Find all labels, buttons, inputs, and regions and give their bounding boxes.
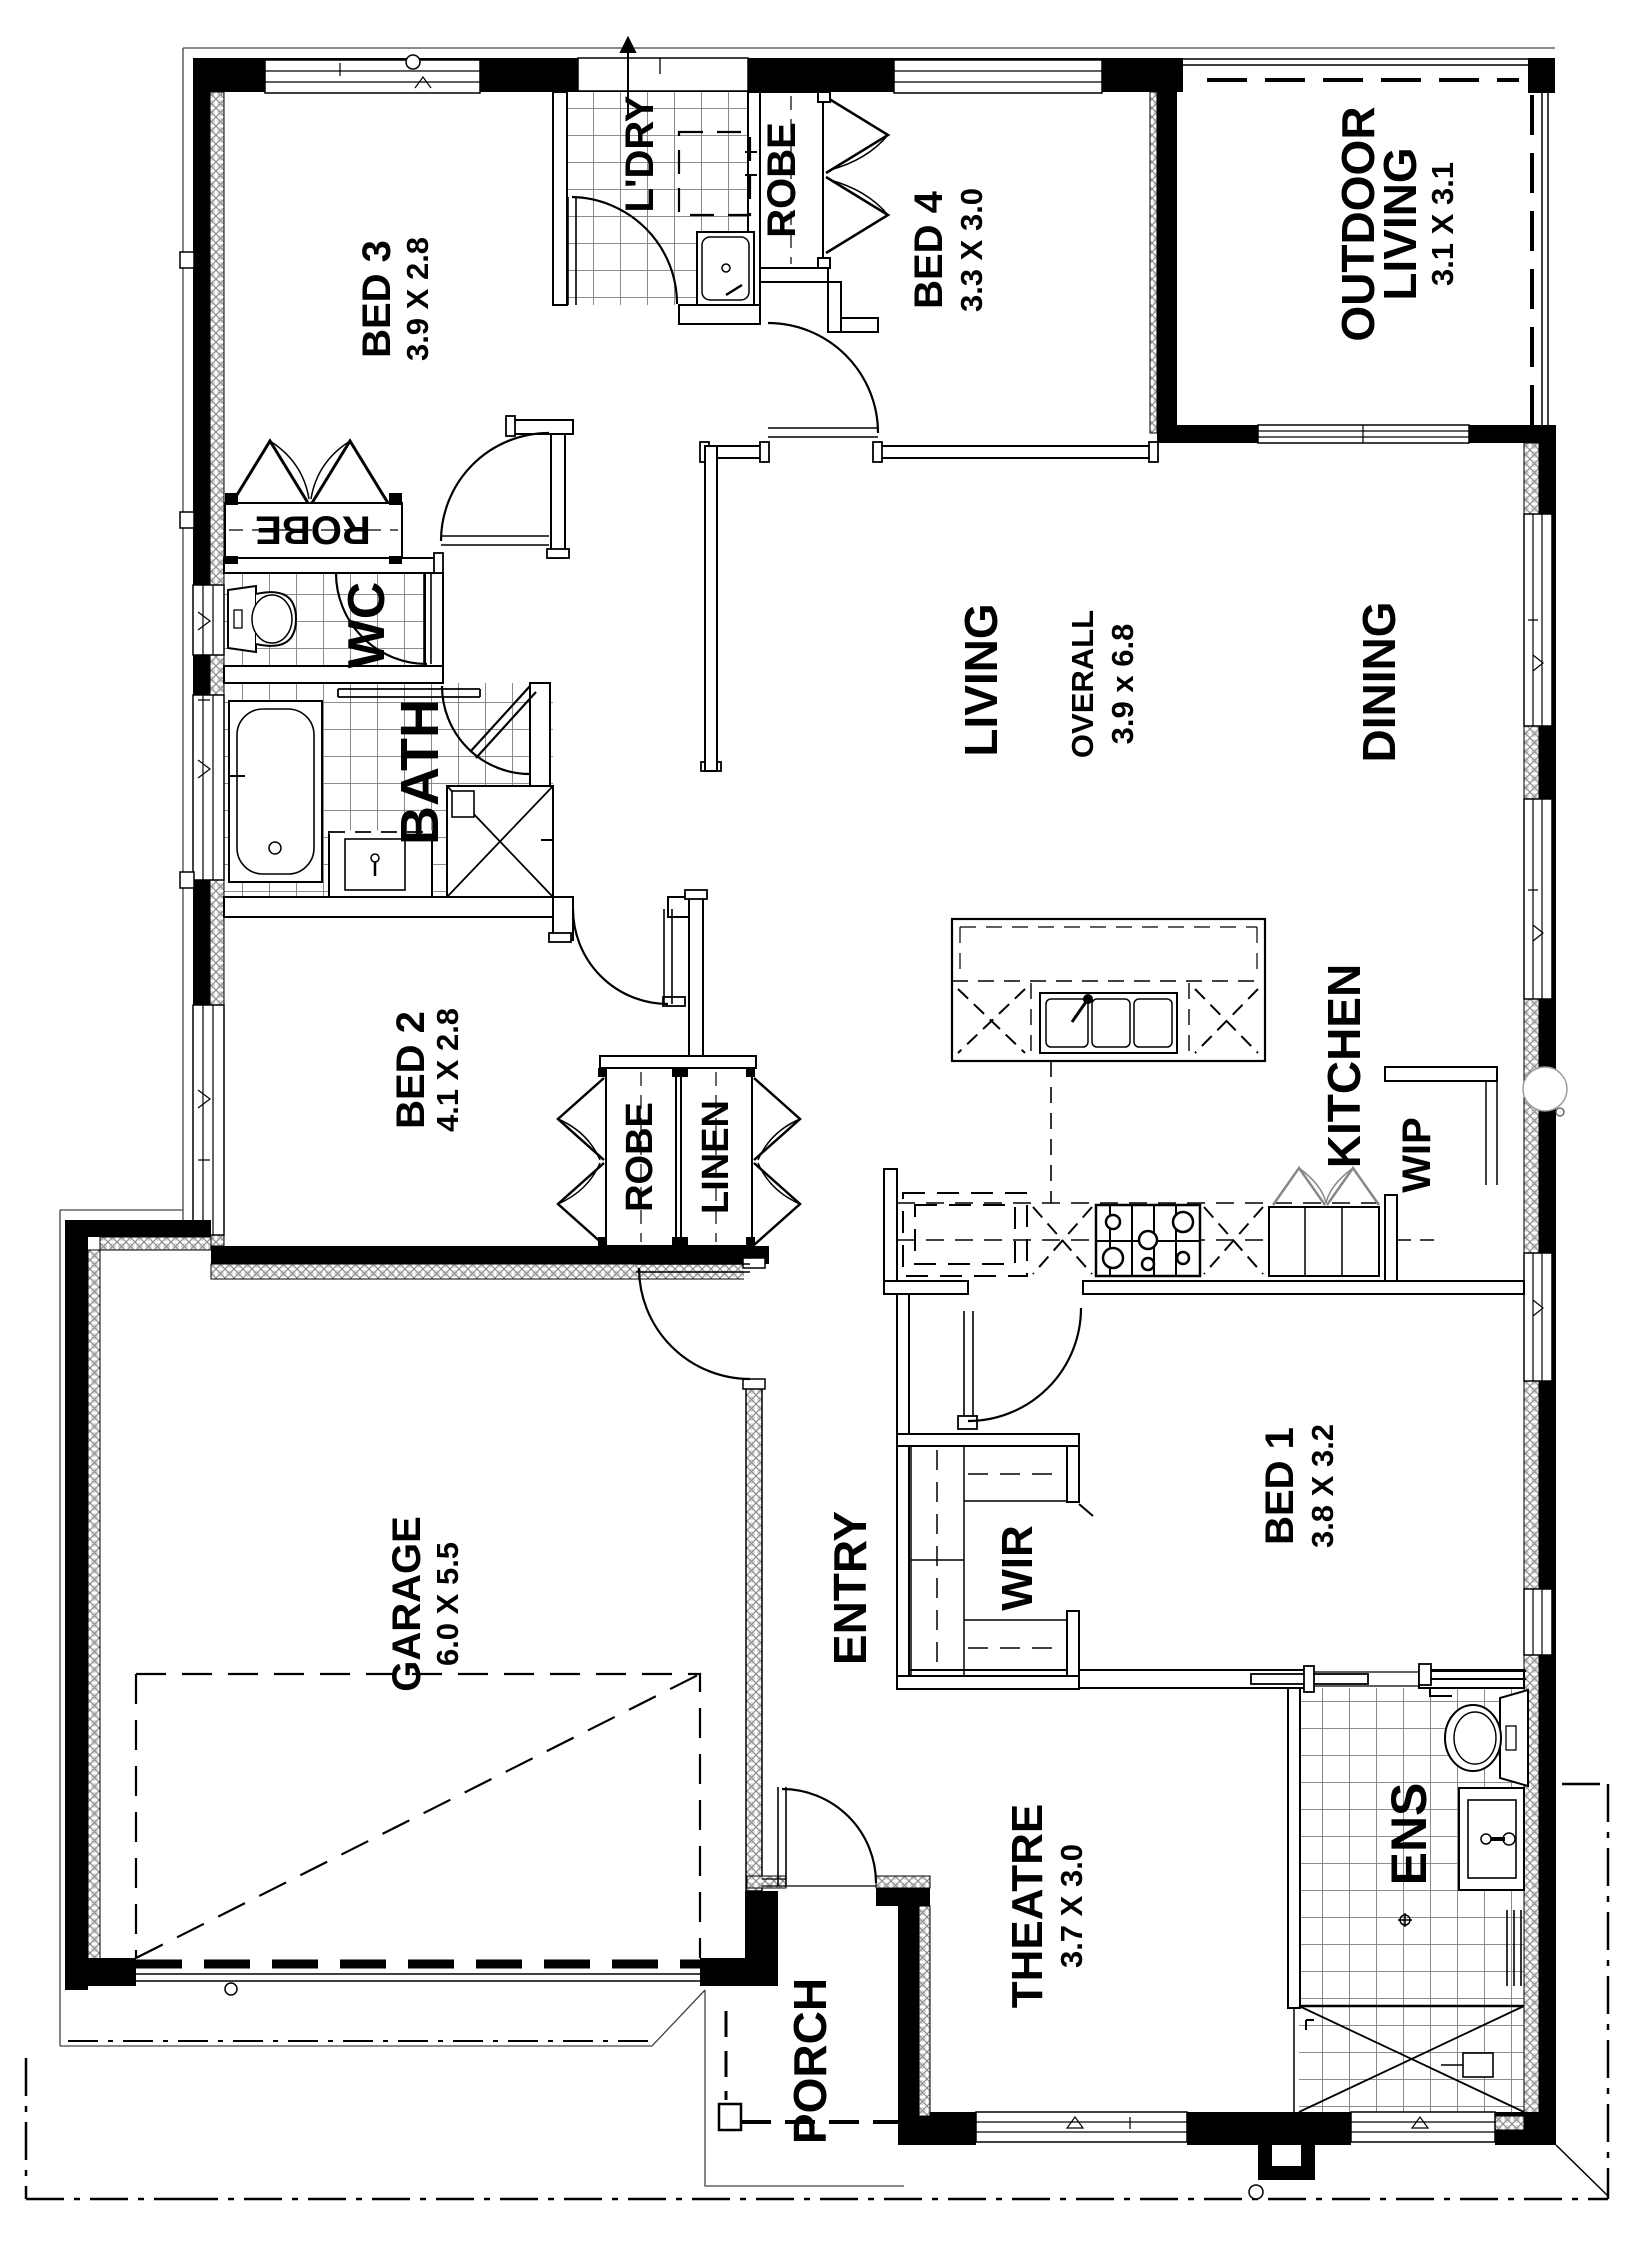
svg-text:3.3 X 3.0: 3.3 X 3.0 [954, 188, 989, 312]
svg-text:WC: WC [338, 582, 396, 669]
svg-text:KITCHEN: KITCHEN [1318, 964, 1370, 1168]
svg-text:4.1 X 2.8: 4.1 X 2.8 [430, 1008, 465, 1132]
svg-text:3.1 X 3.1: 3.1 X 3.1 [1425, 162, 1460, 286]
svg-text:ROBE: ROBE [760, 122, 804, 238]
svg-text:BED 1: BED 1 [1258, 1427, 1302, 1545]
svg-text:LINEN: LINEN [695, 1100, 737, 1214]
svg-text:BED 2: BED 2 [389, 1011, 433, 1129]
svg-text:WIR: WIR [993, 1525, 1042, 1611]
svg-text:DINING: DINING [1353, 602, 1405, 763]
svg-text:BED 4: BED 4 [907, 190, 951, 309]
svg-text:BED 3: BED 3 [355, 240, 399, 358]
svg-text:GARAGE: GARAGE [385, 1516, 429, 1692]
svg-text:6.0 X 5.5: 6.0 X 5.5 [430, 1542, 465, 1666]
svg-text:ROBE: ROBE [619, 1102, 661, 1212]
svg-text:3.9 x 6.8: 3.9 x 6.8 [1105, 624, 1140, 745]
svg-text:PORCH: PORCH [784, 1978, 836, 2144]
svg-text:3.9 X 2.8: 3.9 X 2.8 [400, 237, 435, 361]
svg-text:WIP: WIP [1395, 1117, 1439, 1193]
svg-text:LIVING: LIVING [955, 603, 1007, 756]
svg-text:OVERALL: OVERALL [1065, 610, 1100, 758]
svg-text:BATH: BATH [390, 699, 450, 845]
svg-text:THEATRE: THEATRE [1003, 1804, 1052, 2009]
svg-text:ROBE: ROBE [255, 507, 371, 551]
svg-text:ENTRY: ENTRY [824, 1511, 876, 1665]
svg-text:L'DRY: L'DRY [618, 95, 662, 212]
svg-text:3.8 X 3.2: 3.8 X 3.2 [1305, 1424, 1340, 1548]
svg-text:ENS: ENS [1381, 1783, 1437, 1886]
svg-text:LIVING: LIVING [1374, 147, 1426, 300]
svg-text:3.7 X 3.0: 3.7 X 3.0 [1054, 1844, 1089, 1968]
